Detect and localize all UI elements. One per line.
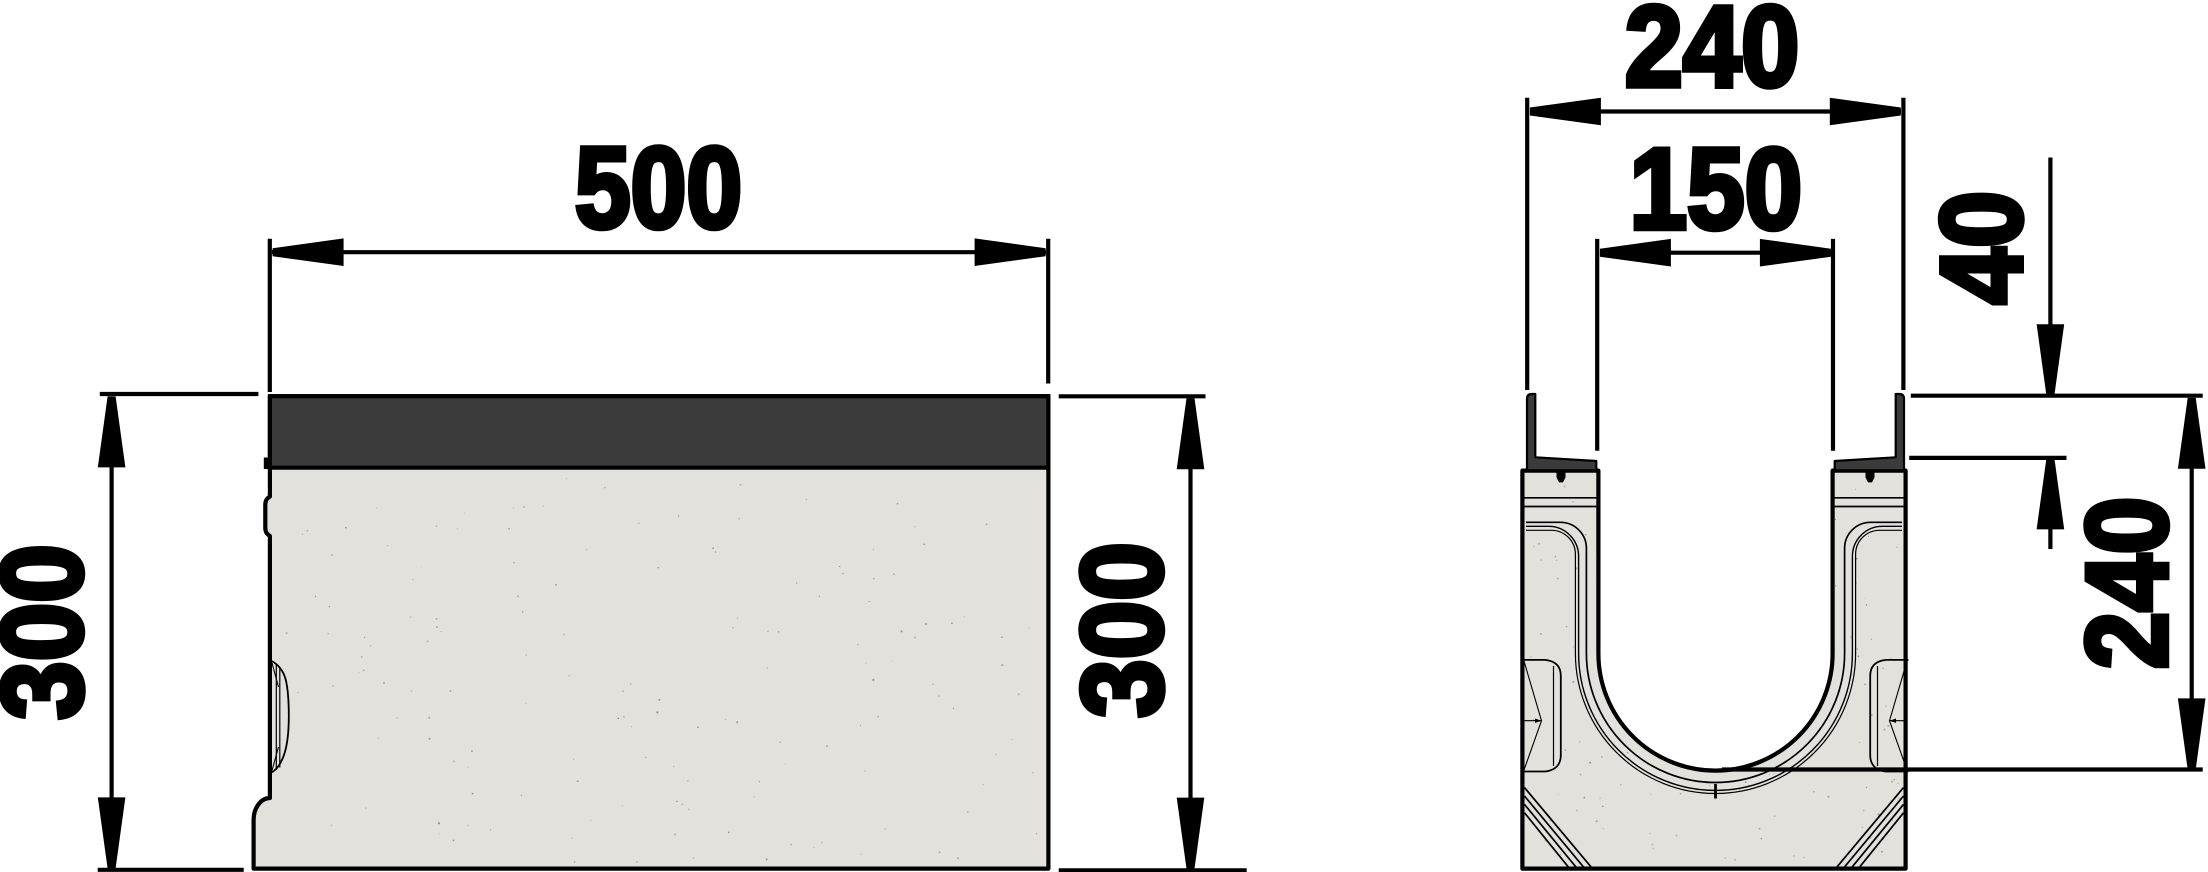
svg-text:240: 240 [2063,497,2191,670]
svg-text:500: 500 [575,123,742,252]
svg-text:240: 240 [1625,0,1800,111]
svg-text:150: 150 [1629,125,1802,253]
svg-text:40: 40 [1918,191,2047,305]
svg-text:300: 300 [0,544,107,720]
svg-text:300: 300 [1058,542,1186,718]
